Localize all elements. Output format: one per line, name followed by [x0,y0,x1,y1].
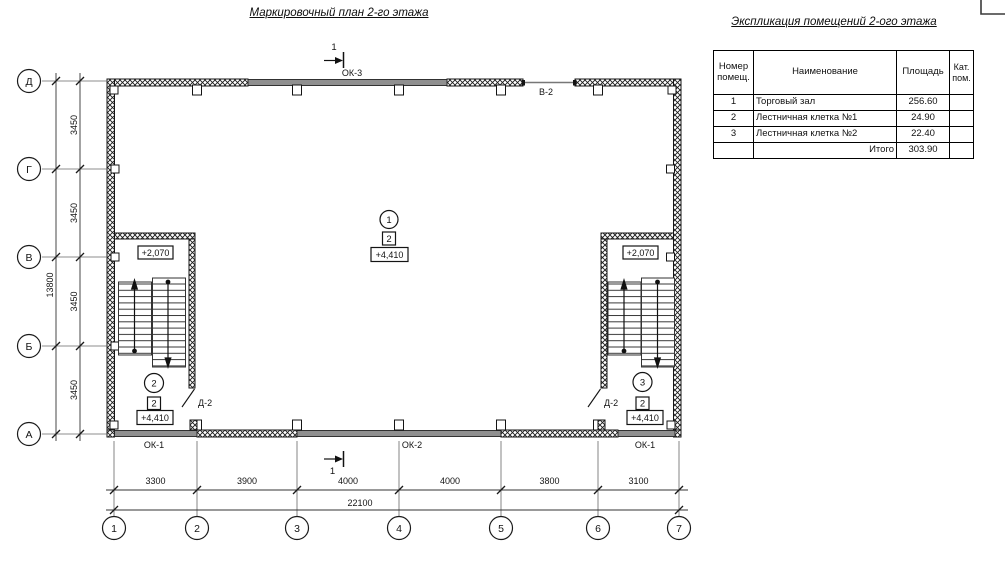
room-number-bubble: 2 [151,379,156,390]
label-ok1-right: ОК-1 [635,440,655,450]
axis-row-g: Г [26,164,32,176]
axis-col-4: 4 [396,523,402,535]
level-mark: +4,410 [141,413,169,423]
dim-bottom-3: 4000 [338,476,358,486]
room-marker-hall: 1 2 +4,410 [371,211,408,262]
label-ok3: ОК-3 [342,68,362,78]
axis-col-3: 3 [294,523,300,535]
label-v2: В-2 [539,87,553,97]
axis-col-1: 1 [111,523,117,535]
label-d2-left: Д-2 [198,398,212,408]
section-mark-top: 1 [324,42,344,68]
door-leaf-left [182,389,195,407]
axis-col-5: 5 [498,523,504,535]
dim-bottom-total: 22100 [347,498,372,508]
level-mark: +2,070 [627,248,655,258]
room-category-box: 2 [151,399,156,410]
door-leaf-right [588,389,601,407]
axis-col-6: 6 [595,523,601,535]
label-ok2: ОК-2 [402,440,422,450]
opening-v2 [522,80,577,86]
window-ok1-left [115,431,198,437]
door-jamb-left [190,420,197,430]
window-ok2 [297,431,501,437]
dim-left-2: 3450 [69,203,79,223]
drawing-sheet: Маркировочный план 2-го этажа Экспликаци… [0,0,1005,582]
axis-row-a: А [25,429,32,441]
axis-row-b: Б [26,341,33,353]
window-ok1-right [618,431,675,437]
dim-left-total: 13800 [45,272,55,297]
section-number: 1 [331,42,336,53]
window-ok3 [248,80,447,86]
dim-left-4: 3450 [69,380,79,400]
section-mark-bottom: 1 [324,451,344,477]
dim-left-3: 3450 [69,291,79,311]
dim-bottom-1: 3300 [145,476,165,486]
axis-row-d: Д [25,76,32,88]
room-category-box: 2 [640,399,645,410]
axis-row-v: В [25,252,32,264]
room-number-bubble: 1 [386,215,391,226]
floor-plan-drawing: 3300 3900 4000 4000 3800 3100 22100 3450… [0,0,1005,582]
stair-direction-arrows [132,280,661,367]
door-jamb-right [598,420,605,430]
level-mark: +2,070 [142,248,170,258]
label-ok1-left: ОК-1 [144,440,164,450]
dim-bottom-6: 3100 [628,476,648,486]
sheet-frame-corner [981,0,1005,14]
axis-col-2: 2 [194,523,200,535]
dim-bottom-5: 3800 [539,476,559,486]
dim-bottom-4: 4000 [440,476,460,486]
room-number-bubble: 3 [640,378,645,389]
level-mark: +4,410 [376,250,404,260]
section-number: 1 [330,466,335,477]
dim-bottom-2: 3900 [237,476,257,486]
stair-flights [119,278,675,367]
dim-left-1: 3450 [69,115,79,135]
label-d2-right: Д-2 [604,398,618,408]
level-mark: +4,410 [631,413,659,423]
room-category-box: 2 [386,234,391,245]
axis-col-7: 7 [676,523,682,535]
